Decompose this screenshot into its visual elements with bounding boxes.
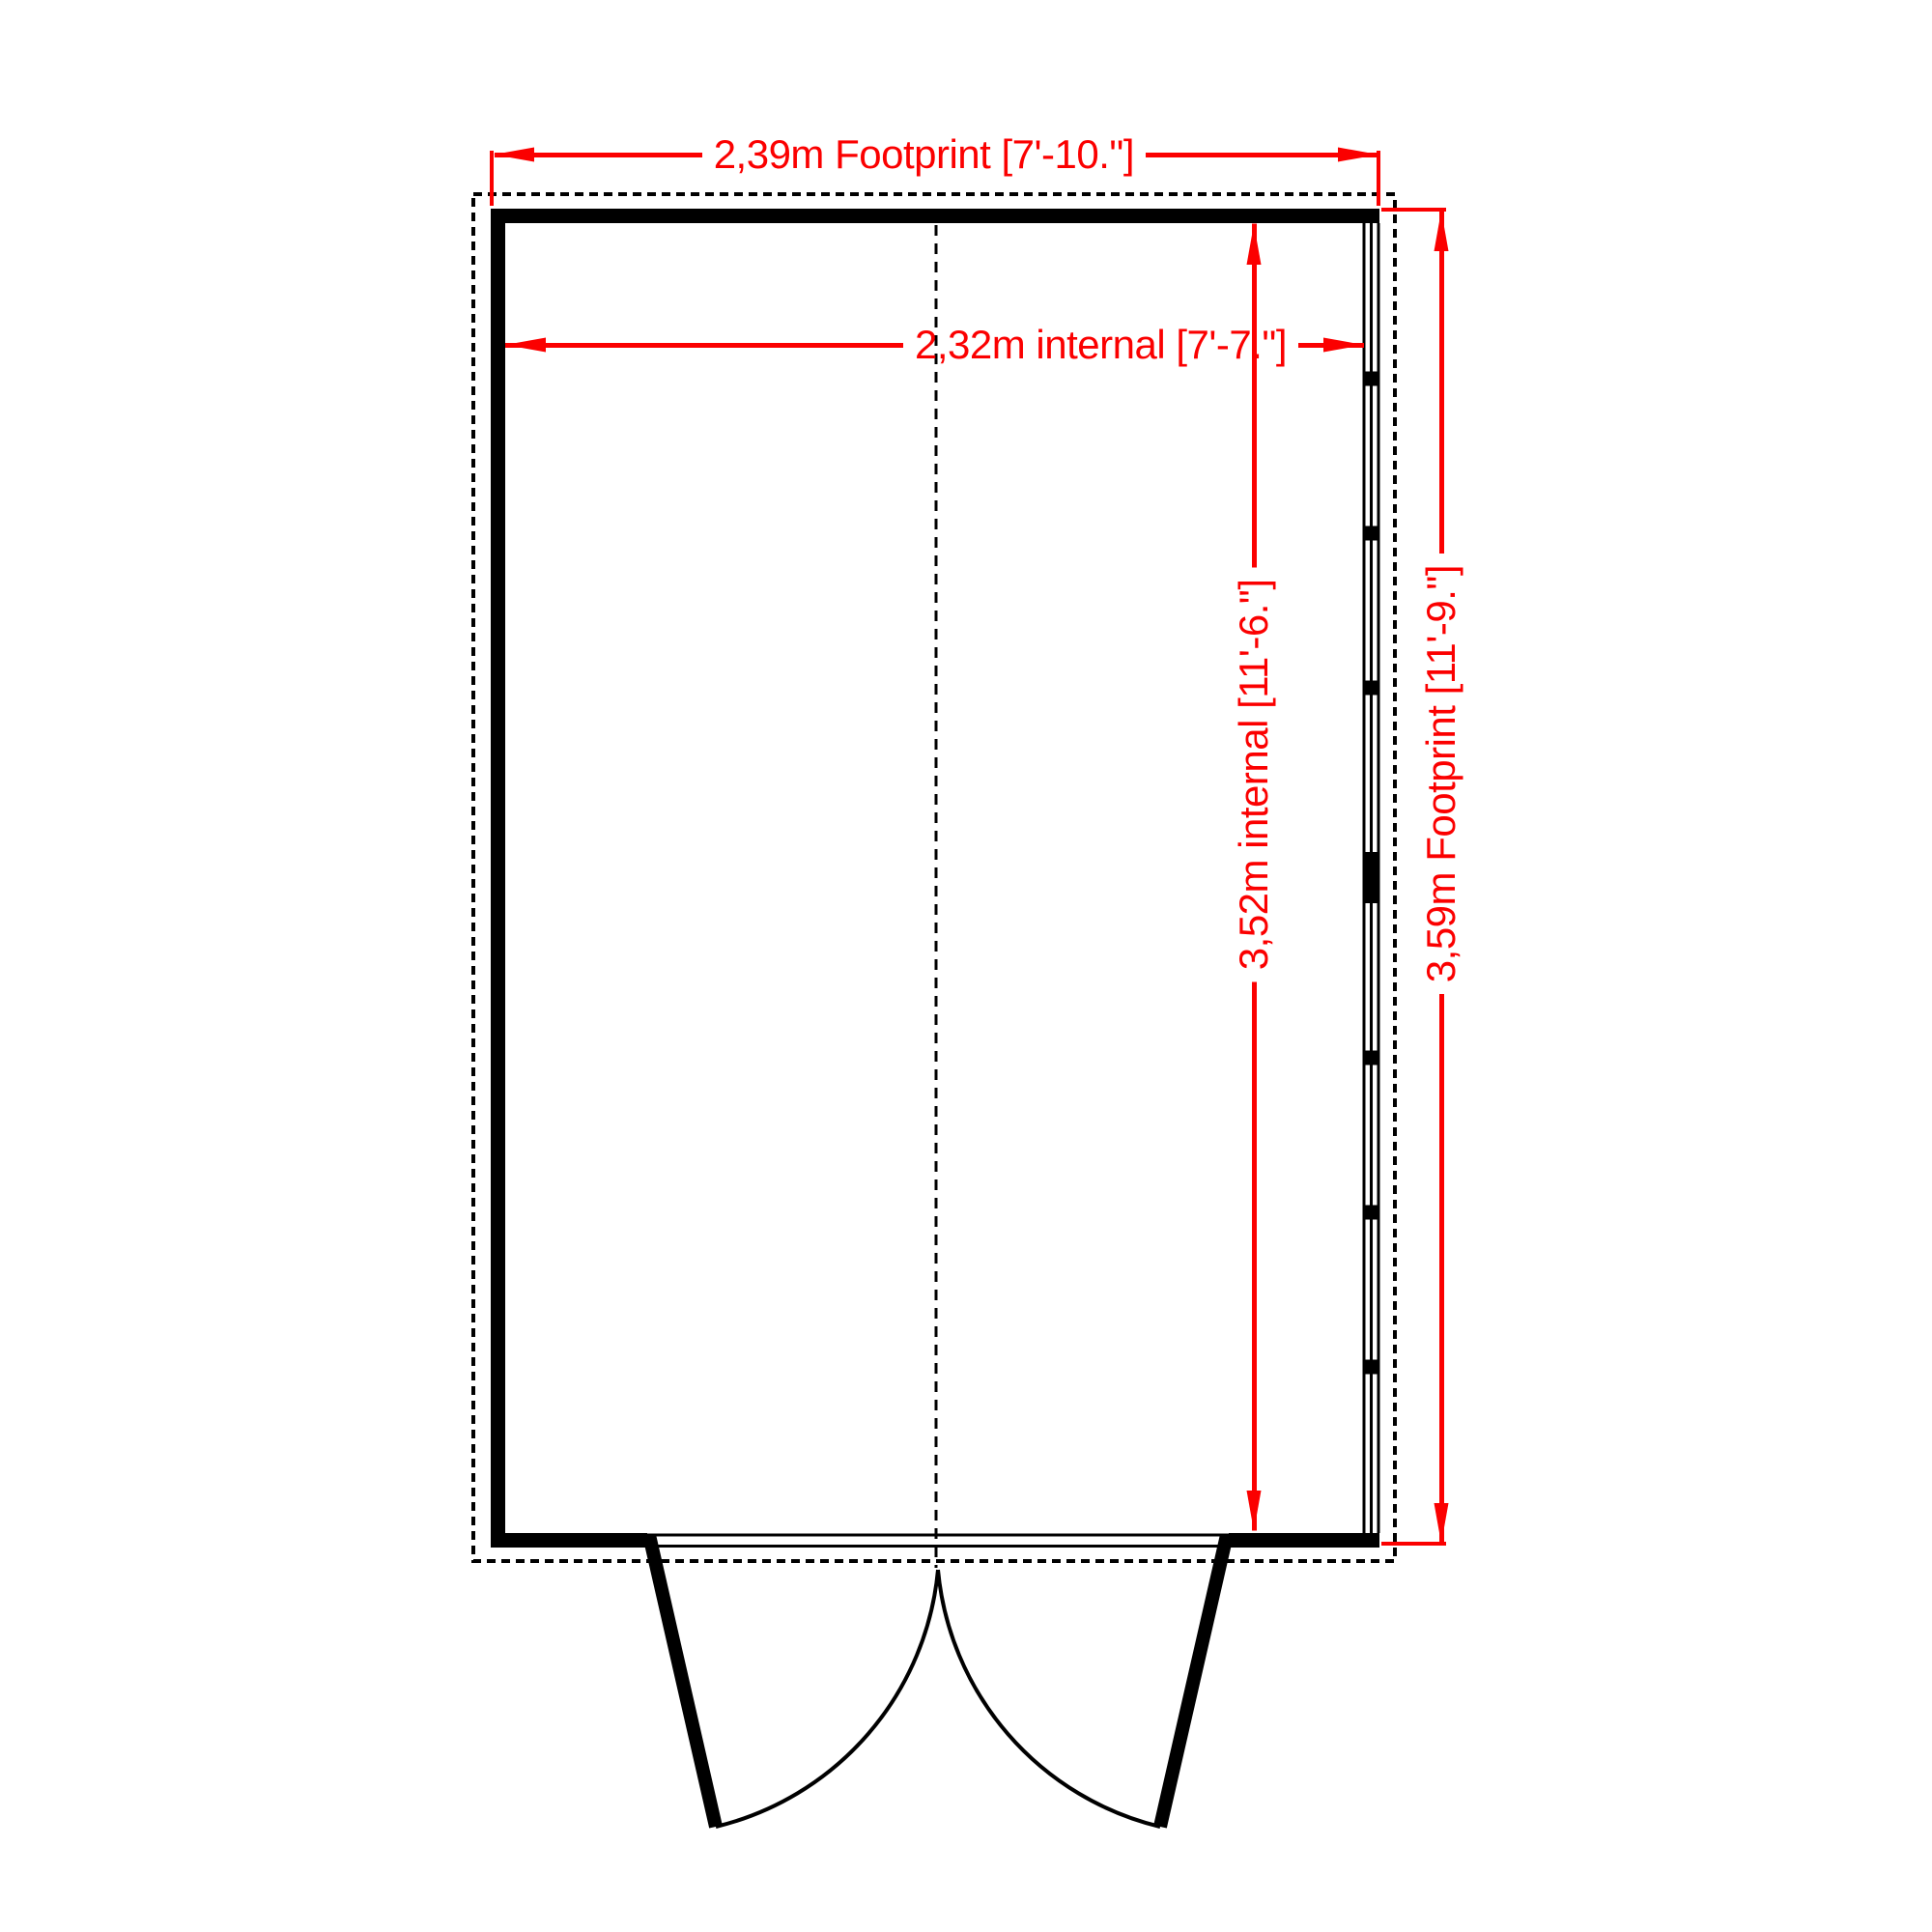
wall-bottom-right (1229, 1533, 1379, 1548)
window-mullion (1363, 1206, 1380, 1220)
dimension-label-internal-depth: 3,52m internal [11'-6."] (1231, 568, 1277, 982)
dimension-label-footprint-depth: 3,59m Footprint [11'-9."] (1418, 554, 1464, 994)
dimension-line-segment (1252, 224, 1257, 568)
dimension-line-segment (495, 153, 702, 157)
dimension-line-segment (1439, 211, 1444, 554)
dimension-internal-depth: 3,52m internal [11'-6."] (1231, 224, 1277, 1531)
window-mullion-large (1363, 852, 1380, 903)
window-mullion (1363, 526, 1380, 541)
door-swing-arc-right (938, 1570, 1160, 1827)
window-mullion (1363, 372, 1380, 386)
window-mullion (1363, 1360, 1380, 1375)
window-mullion (1363, 1051, 1380, 1065)
door-leaf-right (1160, 1535, 1227, 1827)
dimension-line-segment (1439, 994, 1444, 1544)
wall-top (491, 209, 1379, 223)
floor-plan-canvas: 2,39m Footprint [7'-10."] 2,32m internal… (0, 0, 1932, 1932)
window-mullion (1363, 681, 1380, 696)
plan-drawing (0, 0, 1932, 1932)
door-threshold (647, 1535, 1229, 1547)
dimension-footprint-width: 2,39m Footprint [7'-10."] (495, 131, 1378, 178)
dimension-line-segment (1298, 343, 1364, 348)
window-wall (1363, 223, 1380, 1533)
wall-bottom-left (491, 1533, 647, 1548)
dimension-line-segment (1146, 153, 1378, 157)
wall-left (491, 209, 505, 1548)
double-doors (649, 1535, 1227, 1827)
dimension-line-segment (1252, 981, 1257, 1530)
door-swing-arc-left (716, 1570, 938, 1827)
dimension-line-segment (505, 343, 903, 348)
dimension-footprint-depth: 3,59m Footprint [11'-9."] (1418, 211, 1464, 1544)
door-leaf-left (649, 1535, 716, 1827)
dimension-label-footprint-width: 2,39m Footprint [7'-10."] (702, 131, 1146, 178)
